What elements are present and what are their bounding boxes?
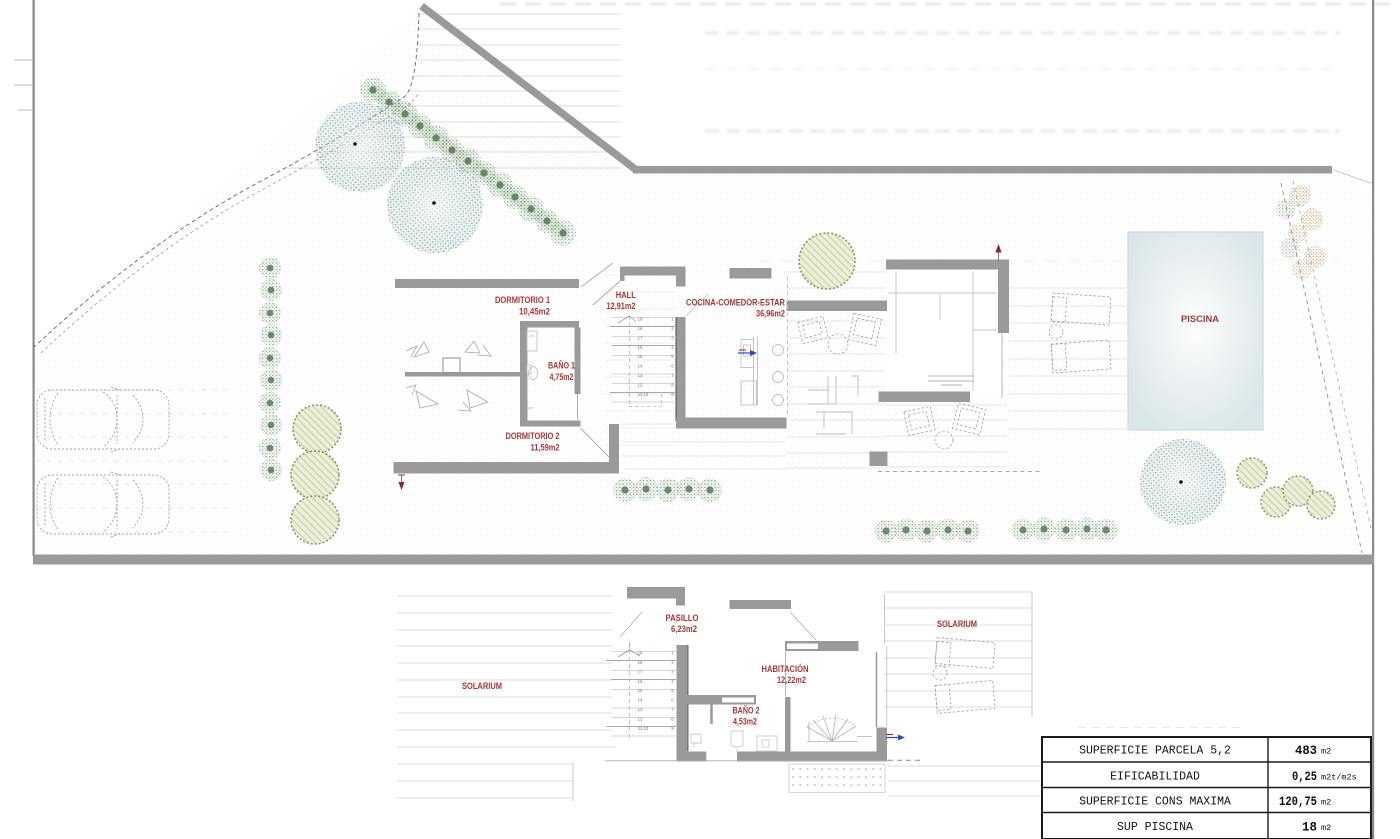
svg-text:11 10: 11 10 (638, 392, 649, 397)
svg-text:16: 16 (638, 679, 643, 684)
svg-text:PASILLO: PASILLO (666, 613, 699, 623)
svg-text:COCINA-COMEDOR-ESTAR: COCINA-COMEDOR-ESTAR (686, 298, 785, 308)
svg-text:DORMITORIO 2: DORMITORIO 2 (506, 431, 560, 441)
svg-text:120,75: 120,75 (1279, 795, 1317, 809)
svg-text:10,45m2: 10,45m2 (519, 307, 550, 317)
svg-text:11,59m2: 11,59m2 (531, 443, 560, 453)
svg-text:SUPERFICIE CONS MAXIMA: SUPERFICIE CONS MAXIMA (1079, 796, 1231, 809)
svg-text:4,75m2: 4,75m2 (550, 372, 574, 382)
svg-text:HABITACIÓN: HABITACIÓN (762, 663, 809, 674)
svg-text:13: 13 (638, 373, 643, 378)
svg-text:16: 16 (638, 345, 643, 350)
svg-text:m2: m2 (1321, 798, 1331, 808)
svg-text:13: 13 (638, 707, 643, 712)
svg-text:17: 17 (638, 669, 643, 674)
svg-text:18: 18 (1302, 821, 1317, 835)
svg-text:BAÑO 1: BAÑO 1 (548, 361, 575, 371)
svg-text:15: 15 (638, 688, 643, 693)
svg-text:14: 14 (638, 698, 643, 703)
svg-text:12,22m2: 12,22m2 (777, 675, 806, 685)
svg-text:12,91m2: 12,91m2 (607, 301, 636, 311)
svg-text:SUP PISCINA: SUP PISCINA (1117, 821, 1193, 834)
svg-text:m2: m2 (1321, 747, 1331, 757)
svg-text:12: 12 (638, 716, 643, 721)
svg-text:0,25: 0,25 (1292, 770, 1317, 784)
svg-text:483: 483 (1295, 744, 1317, 758)
svg-text:18: 18 (638, 651, 643, 656)
svg-text:EIFICABILIDAD: EIFICABILIDAD (1110, 771, 1200, 784)
svg-text:SOLARIUM: SOLARIUM (462, 681, 502, 691)
svg-text:BAÑO 2: BAÑO 2 (733, 706, 760, 716)
svg-text:PISCINA: PISCINA (1181, 314, 1219, 325)
svg-text:12: 12 (638, 382, 643, 387)
svg-text:14: 14 (638, 364, 643, 369)
svg-text:15: 15 (638, 354, 643, 359)
svg-text:SOLARIUM: SOLARIUM (937, 619, 977, 629)
svg-text:11 10: 11 10 (638, 726, 649, 731)
svg-text:18: 18 (638, 317, 643, 322)
svg-text:17: 17 (638, 335, 643, 340)
svg-text:SUPERFICIE PARCELA 5,2: SUPERFICIE PARCELA 5,2 (1079, 745, 1231, 758)
svg-text:DORMITORIO 1: DORMITORIO 1 (495, 295, 550, 305)
svg-text:6,23m2: 6,23m2 (671, 624, 697, 634)
svg-text:m2t/m2s: m2t/m2s (1321, 773, 1357, 783)
svg-text:m2: m2 (1321, 823, 1331, 833)
svg-text:4,53m2: 4,53m2 (733, 717, 757, 727)
svg-text:16: 16 (638, 326, 643, 331)
svg-text:16: 16 (638, 660, 643, 665)
svg-text:36,96m2: 36,96m2 (756, 309, 785, 319)
svg-text:HALL: HALL (616, 290, 636, 300)
